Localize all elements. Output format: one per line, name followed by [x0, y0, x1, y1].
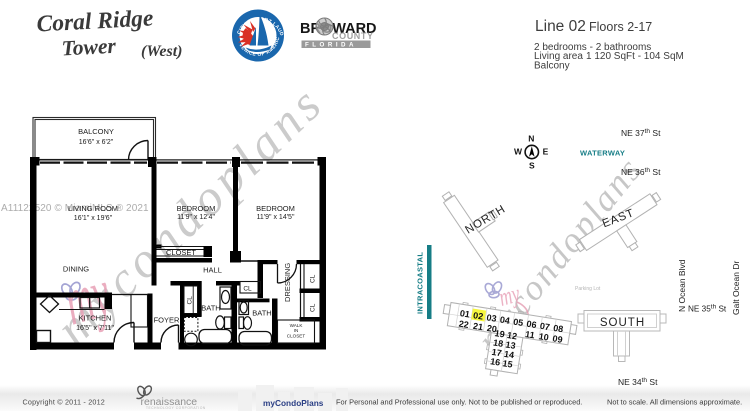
svg-text:N: N — [528, 134, 534, 144]
svg-text:11: 11 — [524, 329, 535, 340]
svg-text:11'9" x 14'5": 11'9" x 14'5" — [257, 214, 295, 221]
svg-text:1 120 SqFt - 104 SqM: 1 120 SqFt - 104 SqM — [586, 51, 684, 62]
svg-text:DRESSING: DRESSING — [283, 263, 292, 302]
svg-text:NE 35th St: NE 35th St — [688, 304, 727, 314]
svg-text:Tower: Tower — [61, 34, 117, 61]
svg-text:21: 21 — [472, 321, 483, 332]
svg-text:CL: CL — [243, 286, 252, 293]
svg-text:Floors 2-17: Floors 2-17 — [589, 20, 652, 34]
svg-text:22: 22 — [458, 319, 469, 330]
svg-text:WATERWAY: WATERWAY — [580, 149, 625, 158]
svg-text:CL: CL — [310, 274, 317, 283]
svg-text:LIVING ROOM: LIVING ROOM — [68, 204, 118, 213]
svg-text:09: 09 — [552, 333, 563, 344]
svg-text:05: 05 — [513, 317, 524, 328]
svg-text:NE 37th St: NE 37th St — [621, 128, 661, 138]
svg-text:BALCONY: BALCONY — [78, 127, 114, 136]
svg-text:Copyright © 2011 - 2012: Copyright © 2011 - 2012 — [23, 398, 105, 407]
svg-text:(West): (West) — [141, 43, 182, 60]
svg-text:COUNTY: COUNTY — [332, 31, 374, 41]
svg-text:10: 10 — [538, 331, 549, 342]
svg-text:Parking Lot: Parking Lot — [575, 286, 601, 292]
svg-text:BEDROOM: BEDROOM — [256, 204, 295, 213]
svg-text:11'9" x 12'4": 11'9" x 12'4" — [177, 214, 215, 221]
svg-text:TECHNOLOGY CORPORATION: TECHNOLOGY CORPORATION — [146, 406, 206, 410]
svg-text:16: 16 — [490, 356, 501, 367]
svg-text:BATH: BATH — [252, 309, 271, 318]
svg-text:DINING: DINING — [63, 265, 89, 274]
svg-text:15: 15 — [502, 358, 513, 369]
svg-text:W: W — [514, 147, 523, 157]
svg-text:SOUTH: SOUTH — [600, 317, 645, 329]
svg-text:16'5" x 7'11": 16'5" x 7'11" — [76, 325, 114, 332]
svg-text:Not to scale. All dimensions: Not to scale. All dimensions approximate… — [607, 398, 742, 407]
svg-text:CLOSET: CLOSET — [287, 334, 306, 339]
svg-text:04: 04 — [499, 314, 510, 325]
svg-text:CLOSET: CLOSET — [166, 248, 196, 257]
svg-text:16'6" x 6'2": 16'6" x 6'2" — [79, 139, 114, 146]
svg-text:IN: IN — [294, 328, 299, 333]
svg-text:HALL: HALL — [203, 266, 222, 275]
svg-text:CL: CL — [310, 303, 317, 312]
svg-text:FOYER: FOYER — [154, 316, 180, 325]
svg-text:Galt Ocean Dr: Galt Ocean Dr — [731, 261, 741, 315]
svg-text:Line 02: Line 02 — [535, 18, 586, 35]
svg-text:N Ocean Blvd: N Ocean Blvd — [677, 259, 687, 312]
svg-text:CL: CL — [187, 296, 194, 305]
svg-text:myCondoPlans: myCondoPlans — [263, 398, 324, 408]
svg-text:For Personal and Professional: For Personal and Professional use only. … — [336, 398, 582, 407]
svg-text:INTRACOASTAL: INTRACOASTAL — [416, 252, 425, 314]
svg-text:Balcony: Balcony — [534, 61, 570, 72]
svg-text:BATH: BATH — [201, 304, 220, 313]
svg-text:E: E — [543, 147, 549, 157]
svg-text:KITCHEN: KITCHEN — [79, 314, 112, 323]
svg-text:NE 36th St: NE 36th St — [621, 167, 661, 177]
svg-text:BEDROOM: BEDROOM — [177, 204, 216, 213]
svg-text:S: S — [529, 161, 535, 171]
svg-text:16'1" x 19'6": 16'1" x 19'6" — [74, 215, 113, 222]
svg-text:FLORIDA: FLORIDA — [305, 42, 357, 49]
